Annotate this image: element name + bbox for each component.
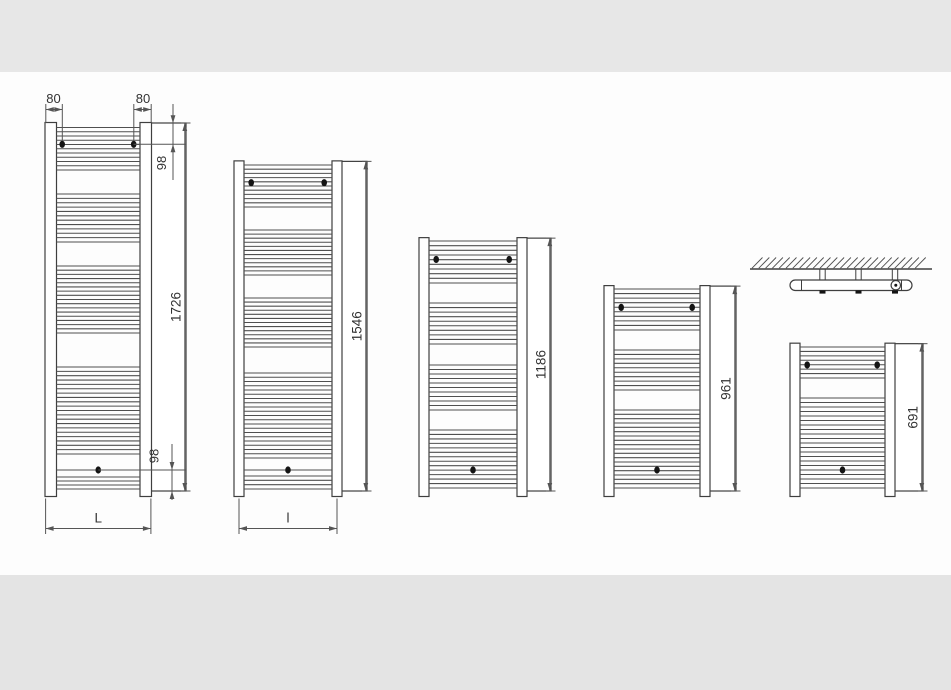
width-dim-label: L xyxy=(94,511,102,526)
towel-rungs xyxy=(614,289,700,488)
right-collector-tube xyxy=(885,343,895,496)
mount-dot xyxy=(689,304,695,311)
radiator-691-drawing: 691 xyxy=(790,343,928,496)
mount-dot xyxy=(59,141,65,148)
inset-80-dimensions: 8080 xyxy=(46,91,151,141)
height-dim-label: 1186 xyxy=(534,350,549,379)
right-collector-tube xyxy=(140,123,152,497)
right-inset-label: 80 xyxy=(136,91,150,106)
top-offset-label: 98 xyxy=(154,156,169,170)
left-collector-tube xyxy=(604,286,614,497)
width-dimension: L xyxy=(46,499,151,535)
width-dimension: l xyxy=(239,499,337,535)
height-dim-label: 961 xyxy=(719,377,734,400)
bottom-offset-label: 98 xyxy=(147,449,162,463)
mount-dot xyxy=(321,179,327,186)
drawing-page: 172698988080L1546l1186961691 xyxy=(0,0,951,690)
dim-arrow xyxy=(170,491,175,499)
left-collector-tube xyxy=(234,161,244,497)
mount-dot xyxy=(804,361,810,368)
dim-arrow xyxy=(46,107,54,112)
front-view xyxy=(604,286,710,497)
mount-dot xyxy=(654,466,660,473)
left-collector-tube xyxy=(45,123,57,497)
front-view xyxy=(419,238,527,497)
radiator-1186-drawing: 1186 xyxy=(419,238,556,497)
dim-arrow xyxy=(134,107,142,112)
bracket-clamp xyxy=(892,290,898,293)
left-collector-tube xyxy=(419,238,429,497)
mount-dot xyxy=(470,466,476,473)
bracket-clamp xyxy=(856,290,862,293)
mount-dot xyxy=(874,361,880,368)
valve-center-dot xyxy=(894,284,897,287)
radiator-1546-drawing: 1546l xyxy=(234,161,372,534)
dim-arrow xyxy=(239,526,247,531)
radiator-technical-drawing: 172698988080L1546l1186961691 xyxy=(0,0,951,690)
wall-hatching xyxy=(752,258,926,269)
height-dim-label: 1726 xyxy=(169,292,184,322)
radiator-961-drawing: 961 xyxy=(604,286,741,497)
mount-dot xyxy=(433,256,439,263)
width-dim-label: l xyxy=(287,511,290,526)
right-collector-tube xyxy=(517,238,527,497)
left-collector-tube xyxy=(790,343,800,496)
towel-rungs xyxy=(57,128,141,490)
bracket-clamp xyxy=(820,290,826,293)
height-dim-label: 1546 xyxy=(350,311,365,341)
dim-arrow xyxy=(54,107,62,112)
dim-arrow xyxy=(143,526,151,531)
mount-dot xyxy=(618,304,624,311)
dim-arrow xyxy=(46,526,54,531)
dim-arrow xyxy=(171,115,176,123)
left-inset-label: 80 xyxy=(46,91,60,106)
mount-points xyxy=(618,304,695,474)
height-dim-label: 691 xyxy=(906,406,921,429)
front-view xyxy=(45,123,152,497)
radiator-1726-drawing: 172698988080L xyxy=(45,91,191,534)
dim-arrow xyxy=(143,107,151,112)
mount-dot xyxy=(840,466,846,473)
dim-arrow xyxy=(329,526,337,531)
right-collector-tube xyxy=(700,286,710,497)
mount-dot xyxy=(285,466,291,473)
mount-dot xyxy=(506,256,512,263)
front-view xyxy=(234,161,342,497)
towel-rungs xyxy=(244,165,332,489)
towel-rungs xyxy=(429,241,517,488)
wall-mount-top-view xyxy=(750,258,932,294)
right-collector-tube xyxy=(332,161,342,497)
mount-dot xyxy=(248,179,254,186)
